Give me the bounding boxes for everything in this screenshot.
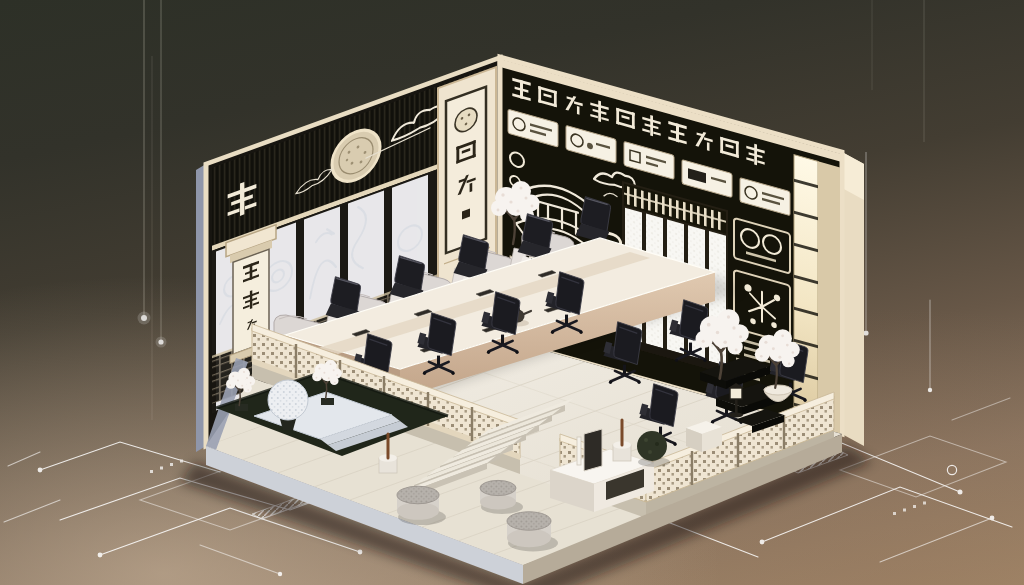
room (196, 57, 1024, 584)
isometric-room-scene: Isometric cutaway illustration of a Japa… (0, 0, 1024, 585)
illustration-stage: Isometric cutaway illustration of a Japa… (0, 0, 1024, 585)
column-side-face (818, 161, 840, 433)
hanging-scroll (446, 87, 486, 253)
illuminated-column (794, 155, 840, 434)
